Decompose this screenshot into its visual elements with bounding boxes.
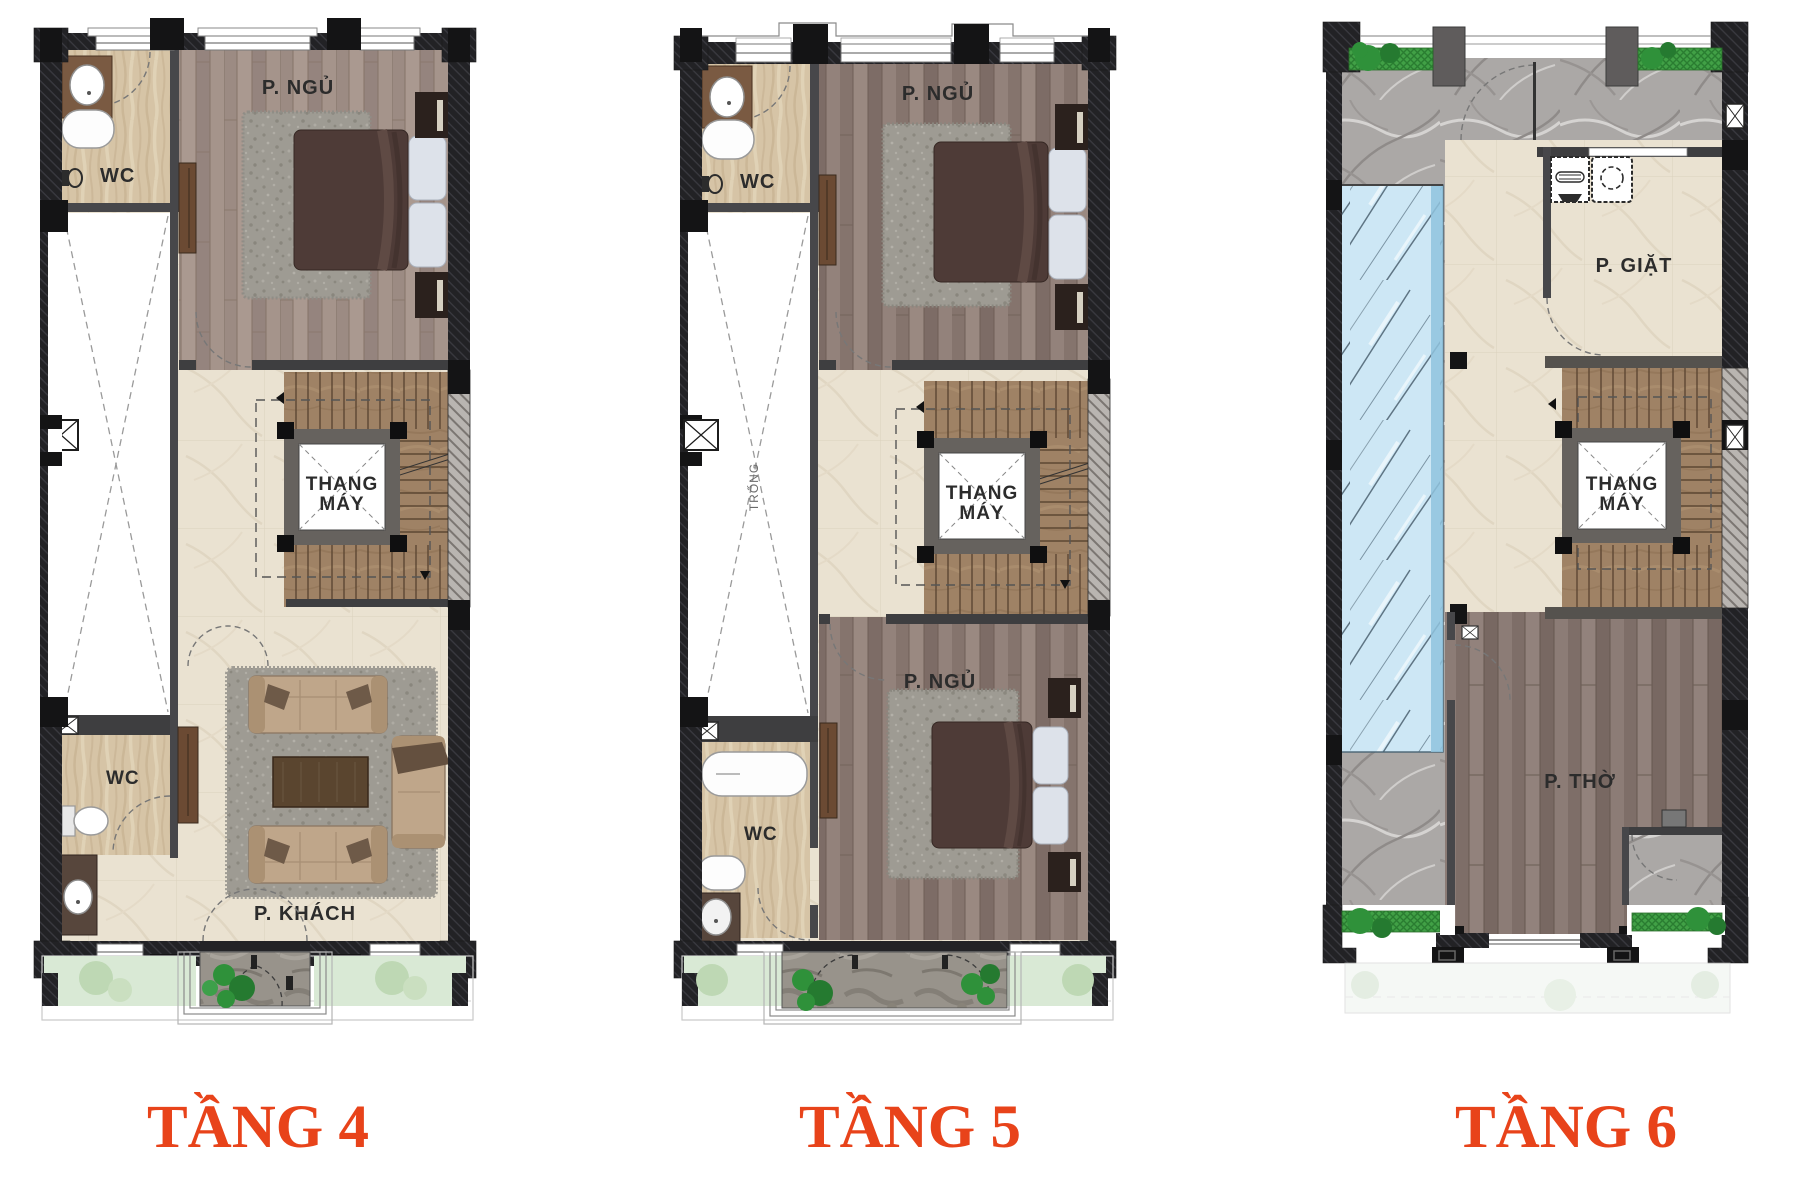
svg-text:MÁY: MÁY — [1599, 493, 1644, 515]
svg-text:TẦNG 6: TẦNG 6 — [1455, 1092, 1677, 1161]
svg-text:WC: WC — [740, 171, 775, 193]
svg-text:TẦNG 4: TẦNG 4 — [147, 1092, 369, 1161]
svg-text:MÁY: MÁY — [319, 493, 364, 515]
svg-text:THANG: THANG — [306, 474, 379, 495]
svg-text:WC: WC — [100, 165, 135, 187]
svg-text:P. NGỦ: P. NGỦ — [262, 75, 334, 99]
svg-text:P. NGỦ: P. NGỦ — [902, 81, 974, 105]
svg-text:WC: WC — [106, 768, 140, 789]
svg-text:TRỐNG: TRỐNG — [746, 463, 761, 511]
svg-text:TẦNG 5: TẦNG 5 — [799, 1092, 1021, 1161]
svg-text:WC: WC — [744, 824, 778, 845]
svg-text:P. THỜ: P. THỜ — [1544, 769, 1616, 793]
svg-text:P. NGỦ: P. NGỦ — [904, 669, 976, 693]
svg-text:P. KHÁCH: P. KHÁCH — [254, 902, 356, 925]
svg-text:THANG: THANG — [946, 483, 1019, 504]
svg-text:P. GIẶT: P. GIẶT — [1596, 254, 1673, 277]
svg-text:THANG: THANG — [1586, 474, 1659, 495]
svg-text:MÁY: MÁY — [959, 502, 1004, 524]
